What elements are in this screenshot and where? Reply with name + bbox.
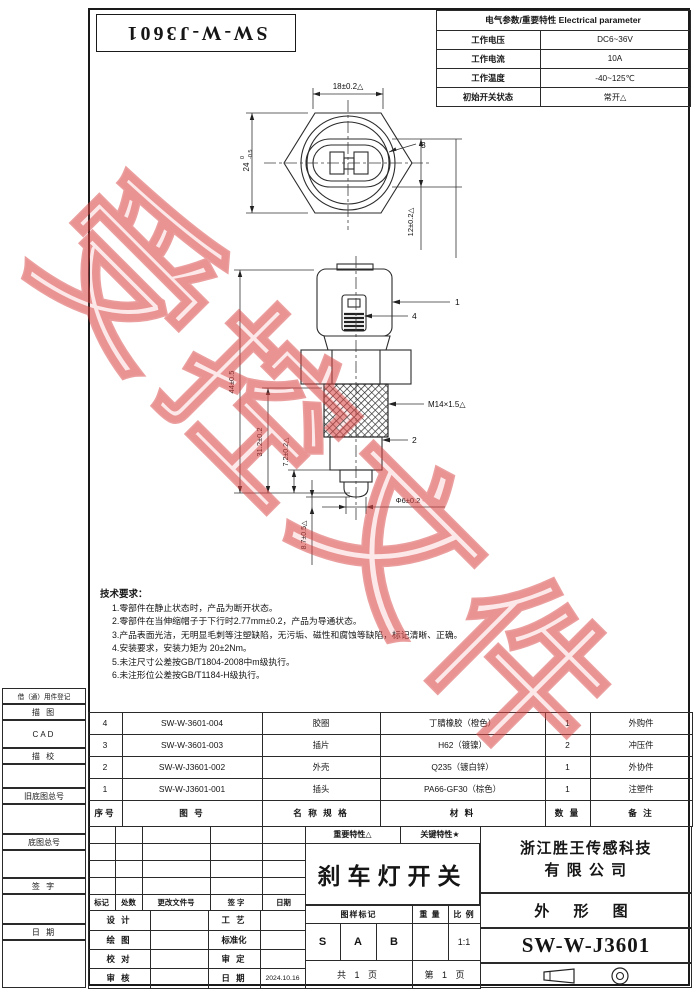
bom-cell: 插片 <box>262 734 381 757</box>
scale-value: 1:1 <box>448 923 481 961</box>
rev-header: 签 字 <box>210 894 263 911</box>
callout-1: 1 <box>455 297 460 307</box>
callout-4: 4 <box>412 311 417 321</box>
mark-label: 图样标记 <box>305 905 413 924</box>
sign-value <box>260 910 306 931</box>
drawing-number: SW-W-J3601 <box>480 928 692 963</box>
margin-cad: CAD <box>2 720 86 748</box>
bom-cell: 外购件 <box>590 712 693 735</box>
bom-header: 名 称 规 格 <box>262 800 381 827</box>
rev-header: 处数 <box>115 894 143 911</box>
revision-empty-grid <box>88 826 305 894</box>
callout-2: 2 <box>412 435 417 445</box>
margin-date: 日 期 <box>2 924 86 940</box>
sign-label: 标准化 <box>208 930 261 950</box>
feature-row: 重要特性△ 关键特性★ <box>305 826 480 843</box>
sign-blank <box>150 910 209 931</box>
dim-24-tol-upper: 0 <box>240 156 246 159</box>
margin-old-base-no: 旧底图总号 <box>2 788 86 804</box>
dim-24: 24 <box>242 162 251 171</box>
tech-note: 5.未注尺寸公差按GB/T1804-2008中m级执行。 <box>100 656 530 669</box>
bom-cell: 外协件 <box>590 756 693 779</box>
rev-header: 日期 <box>262 894 306 911</box>
margin-trace: 描 图 <box>2 704 86 720</box>
spring-coils <box>344 314 364 330</box>
company-block: 浙江胜王传感科技 有 限 公 司 <box>480 826 692 893</box>
pin-bridge <box>344 158 354 169</box>
margin-sign: 签 字 <box>2 878 86 894</box>
tech-note: 1.零部件在静止状态时，产品为断开状态。 <box>100 602 530 615</box>
dim-tip-diameter: Φ6±0.2 <box>396 496 421 505</box>
bom-cell: SW-W-J3601-002 <box>122 756 263 779</box>
sign-label: 审 定 <box>208 949 261 969</box>
weight-label: 重 量 <box>412 905 449 924</box>
bom-header: 序号 <box>88 800 123 827</box>
bom-header: 材 料 <box>380 800 546 827</box>
bom-cell: 插头 <box>262 778 381 801</box>
callout-3: 3 <box>421 140 426 150</box>
dim-12: 12±0.2△ <box>406 207 415 236</box>
weight-value <box>412 923 449 961</box>
bom-cell: SW-W-3601-004 <box>122 712 263 735</box>
bom-cell: Q235（镀白锌） <box>380 756 546 779</box>
mark-value-row: S A B 1:1 <box>305 923 480 960</box>
margin-empty <box>2 764 86 788</box>
bom-table: 4 SW-W-3601-004 胶圈 丁腈橡胶（橙色） 1 外购件 3 SW-W… <box>88 712 692 826</box>
corner-title: SW-W-J3601 <box>97 15 295 51</box>
sign-label: 审 核 <box>88 968 151 989</box>
spring-box-notch <box>348 299 360 307</box>
sign-label: 绘 图 <box>88 930 151 950</box>
dim-8: 8.7±0.5△ <box>301 520 308 549</box>
dim-44: 44±0.5 <box>227 371 236 394</box>
bom-cell: 2 <box>88 756 123 779</box>
bom-header: 数 量 <box>545 800 591 827</box>
bom-cell: 1 <box>545 712 591 735</box>
sign-blank <box>150 949 209 969</box>
margin-trace-check: 描 校 <box>2 748 86 764</box>
bom-cell: 外壳 <box>262 756 381 779</box>
rev-header: 更改文件号 <box>142 894 211 911</box>
bom-cell: SW-W-J3601-001 <box>122 778 263 801</box>
pages-row: 共 1 页 第 1 页 <box>305 960 480 988</box>
bom-header: 图 号 <box>122 800 263 827</box>
drawing-views: 18±0.2△ 24 0 -0.5 3 12±0.2△ <box>90 55 690 585</box>
sign-blank <box>150 968 209 989</box>
projection-circle-icon <box>610 966 630 986</box>
sign-label: 工 艺 <box>208 910 261 931</box>
mark-header-row: 图样标记 重 量 比 例 <box>305 905 480 923</box>
margin-empty <box>2 804 86 834</box>
bom-cell: 2 <box>545 734 591 757</box>
scale-label: 比 例 <box>448 905 481 924</box>
bom-cell: 1 <box>88 778 123 801</box>
sign-date: 2024.10.16 <box>260 968 306 989</box>
dim-31: 31.2±0.2 <box>255 427 264 456</box>
mark-letter: A <box>340 923 377 961</box>
dim-7: 7.2±0.2△ <box>283 437 290 466</box>
margin-empty <box>2 940 86 988</box>
tech-note: 4.安装要求，安装力矩为 20±2Nm。 <box>100 642 530 655</box>
revision-header-row: 标记 处数 更改文件号 签 字 日期 <box>88 894 305 910</box>
tech-notes: 技术要求： 1.零部件在静止状态时，产品为断开状态。 2.零部件在当伸缩帽子于下… <box>100 586 530 682</box>
thread-callout: M14×1.5△ <box>428 400 466 409</box>
margin-base-no: 底图总号 <box>2 834 86 850</box>
margin-empty <box>2 894 86 924</box>
sign-label: 设 计 <box>88 910 151 931</box>
bom-cell: H62（镀镍） <box>380 734 546 757</box>
engineering-drawing-sheet: { "watermark": { "text": "受控文件" }, "corn… <box>0 0 700 995</box>
tech-note: 3.产品表面光洁，无明显毛刺等注塑缺陷，无污垢、磁性和腐蚀等缺陷，标记清晰、正确… <box>100 629 530 642</box>
pages-no: 第 1 页 <box>412 960 481 989</box>
company-line1: 浙江胜王传感科技 <box>520 838 652 860</box>
margin-borrow-record: 借（通）用件登记 <box>2 688 86 704</box>
projection-symbol-row <box>480 963 692 988</box>
pages-total: 共 1 页 <box>305 960 413 989</box>
feature-important: 重要特性△ <box>305 826 401 844</box>
sign-value <box>260 930 306 950</box>
dim-24-tol-lower: -0.5 <box>248 150 254 159</box>
drawing-type: 外 形 图 <box>480 893 692 928</box>
sign-blank <box>150 930 209 950</box>
bom-cell: 1 <box>545 756 591 779</box>
part-name: 刹车灯开关 <box>305 843 480 905</box>
bom-cell: 注塑件 <box>590 778 693 801</box>
bom-cell: 1 <box>545 778 591 801</box>
bom-cell: 冲压件 <box>590 734 693 757</box>
signature-grid: 设 计 工 艺 绘 图 标准化 校 对 审 定 审 核 日 期 2024.10.… <box>88 910 305 988</box>
projection-trapezoid-icon <box>542 968 576 984</box>
corner-title-box: SW-W-J3601 <box>96 14 296 52</box>
rev-header: 标记 <box>88 894 116 911</box>
mark-letter: B <box>376 923 413 961</box>
electrical-header: 电气参数/重要特性 Electrical parameter <box>436 10 691 31</box>
title-block: 标记 处数 更改文件号 签 字 日期 设 计 工 艺 绘 图 标准化 校 对 审… <box>88 826 692 988</box>
sign-label: 校 对 <box>88 949 151 969</box>
collar <box>324 336 390 350</box>
tech-note: 2.零部件在当伸缩帽子于下行时2.77mm±0.2，产品为导通状态。 <box>100 615 530 628</box>
sign-value <box>260 949 306 969</box>
bom-cell: 丁腈橡胶（橙色） <box>380 712 546 735</box>
dim-18: 18±0.2△ <box>333 82 364 91</box>
margin-empty <box>2 850 86 878</box>
sign-label: 日 期 <box>208 968 261 989</box>
bom-cell: 3 <box>88 734 123 757</box>
feature-key: 关键特性★ <box>400 826 481 844</box>
bom-cell: PA66-GF30（棕色） <box>380 778 546 801</box>
bom-cell: SW-W-3601-003 <box>122 734 263 757</box>
bom-cell: 胶圈 <box>262 712 381 735</box>
electrical-row-value: DC6~36V <box>540 30 691 50</box>
electrical-row-label: 工作电压 <box>436 30 541 50</box>
company-line2: 有 限 公 司 <box>544 860 627 882</box>
bom-header: 备 注 <box>590 800 693 827</box>
mark-letter: S <box>305 923 341 961</box>
tech-notes-title: 技术要求： <box>100 586 530 600</box>
bom-cell: 4 <box>88 712 123 735</box>
tech-note: 6.未注形位公差按GB/T1184-H级执行。 <box>100 669 530 682</box>
